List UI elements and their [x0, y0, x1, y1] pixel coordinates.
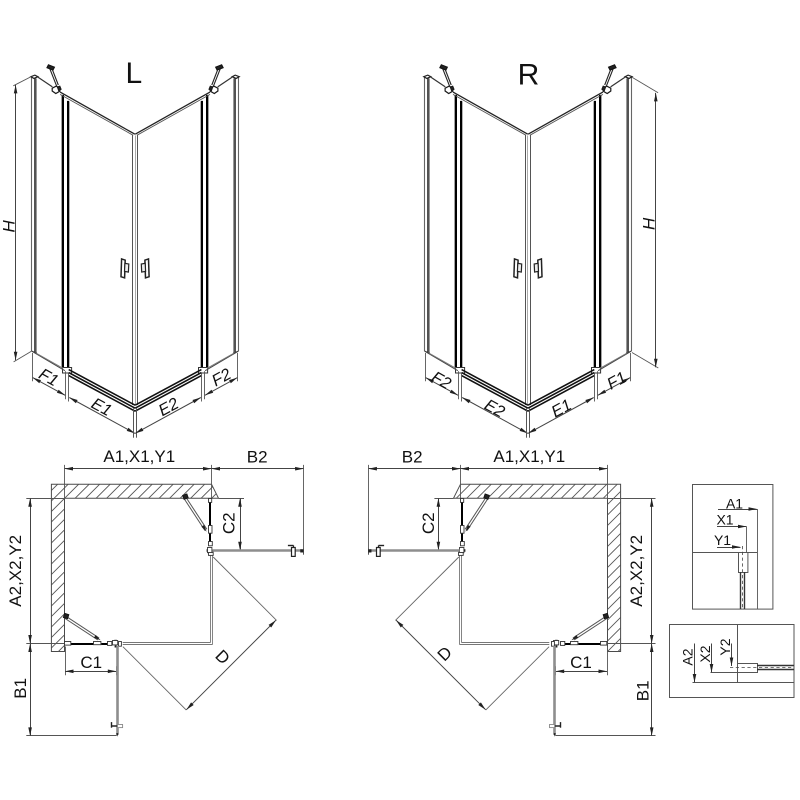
svg-text:B1: B1: [633, 680, 652, 701]
svg-text:D: D: [211, 646, 233, 668]
svg-text:H: H: [639, 217, 658, 230]
svg-text:B1: B1: [11, 678, 30, 699]
svg-text:A2: A2: [679, 648, 695, 665]
svg-text:H: H: [0, 219, 18, 232]
svg-text:E2: E2: [481, 396, 507, 421]
svg-text:C1: C1: [80, 653, 102, 672]
svg-text:Y2: Y2: [717, 638, 733, 655]
svg-text:A2,X2,Y2: A2,X2,Y2: [6, 535, 25, 607]
svg-text:F2: F2: [209, 365, 235, 390]
svg-text:R: R: [518, 59, 540, 92]
svg-text:A2,X2,Y2: A2,X2,Y2: [627, 535, 646, 607]
svg-text:C2: C2: [220, 512, 239, 534]
svg-text:L: L: [125, 57, 142, 90]
svg-text:X2: X2: [697, 645, 713, 662]
svg-text:A1: A1: [726, 495, 743, 511]
svg-text:B2: B2: [247, 448, 268, 467]
svg-text:A1,X1,Y1: A1,X1,Y1: [493, 447, 565, 466]
svg-text:E1: E1: [548, 396, 574, 421]
svg-text:F2: F2: [428, 368, 454, 393]
svg-text:F1: F1: [36, 365, 62, 390]
svg-text:A1,X1,Y1: A1,X1,Y1: [103, 447, 175, 466]
svg-text:Y1: Y1: [714, 532, 731, 548]
svg-text:B2: B2: [402, 448, 423, 467]
svg-text:C1: C1: [570, 653, 592, 672]
svg-text:C2: C2: [419, 512, 438, 534]
svg-text:X1: X1: [716, 512, 733, 528]
